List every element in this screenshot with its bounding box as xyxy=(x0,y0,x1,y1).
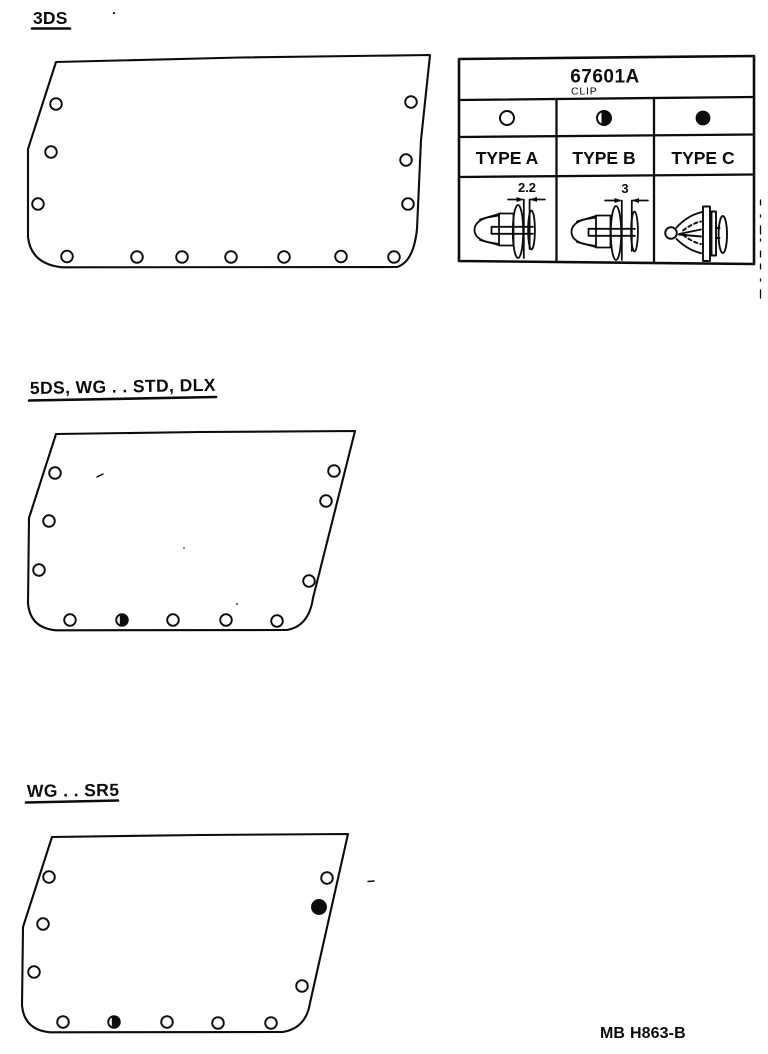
svg-text:TYPE C: TYPE C xyxy=(671,148,735,168)
svg-text:3DS: 3DS xyxy=(33,8,68,28)
svg-text:CLIP: CLIP xyxy=(571,86,598,98)
svg-text:H863-B: H863-B xyxy=(630,1025,686,1042)
svg-text:WG . . SR5: WG . . SR5 xyxy=(27,780,120,801)
svg-text:3: 3 xyxy=(621,181,628,196)
svg-text:TYPE B: TYPE B xyxy=(572,148,635,168)
svg-text:5DS, WG . . STD, DLX: 5DS, WG . . STD, DLX xyxy=(30,375,216,398)
svg-text:67601A: 67601A xyxy=(570,67,640,88)
svg-text:MB: MB xyxy=(600,1025,625,1042)
svg-text:TYPE A: TYPE A xyxy=(476,148,539,168)
svg-text:2.2: 2.2 xyxy=(518,180,536,195)
